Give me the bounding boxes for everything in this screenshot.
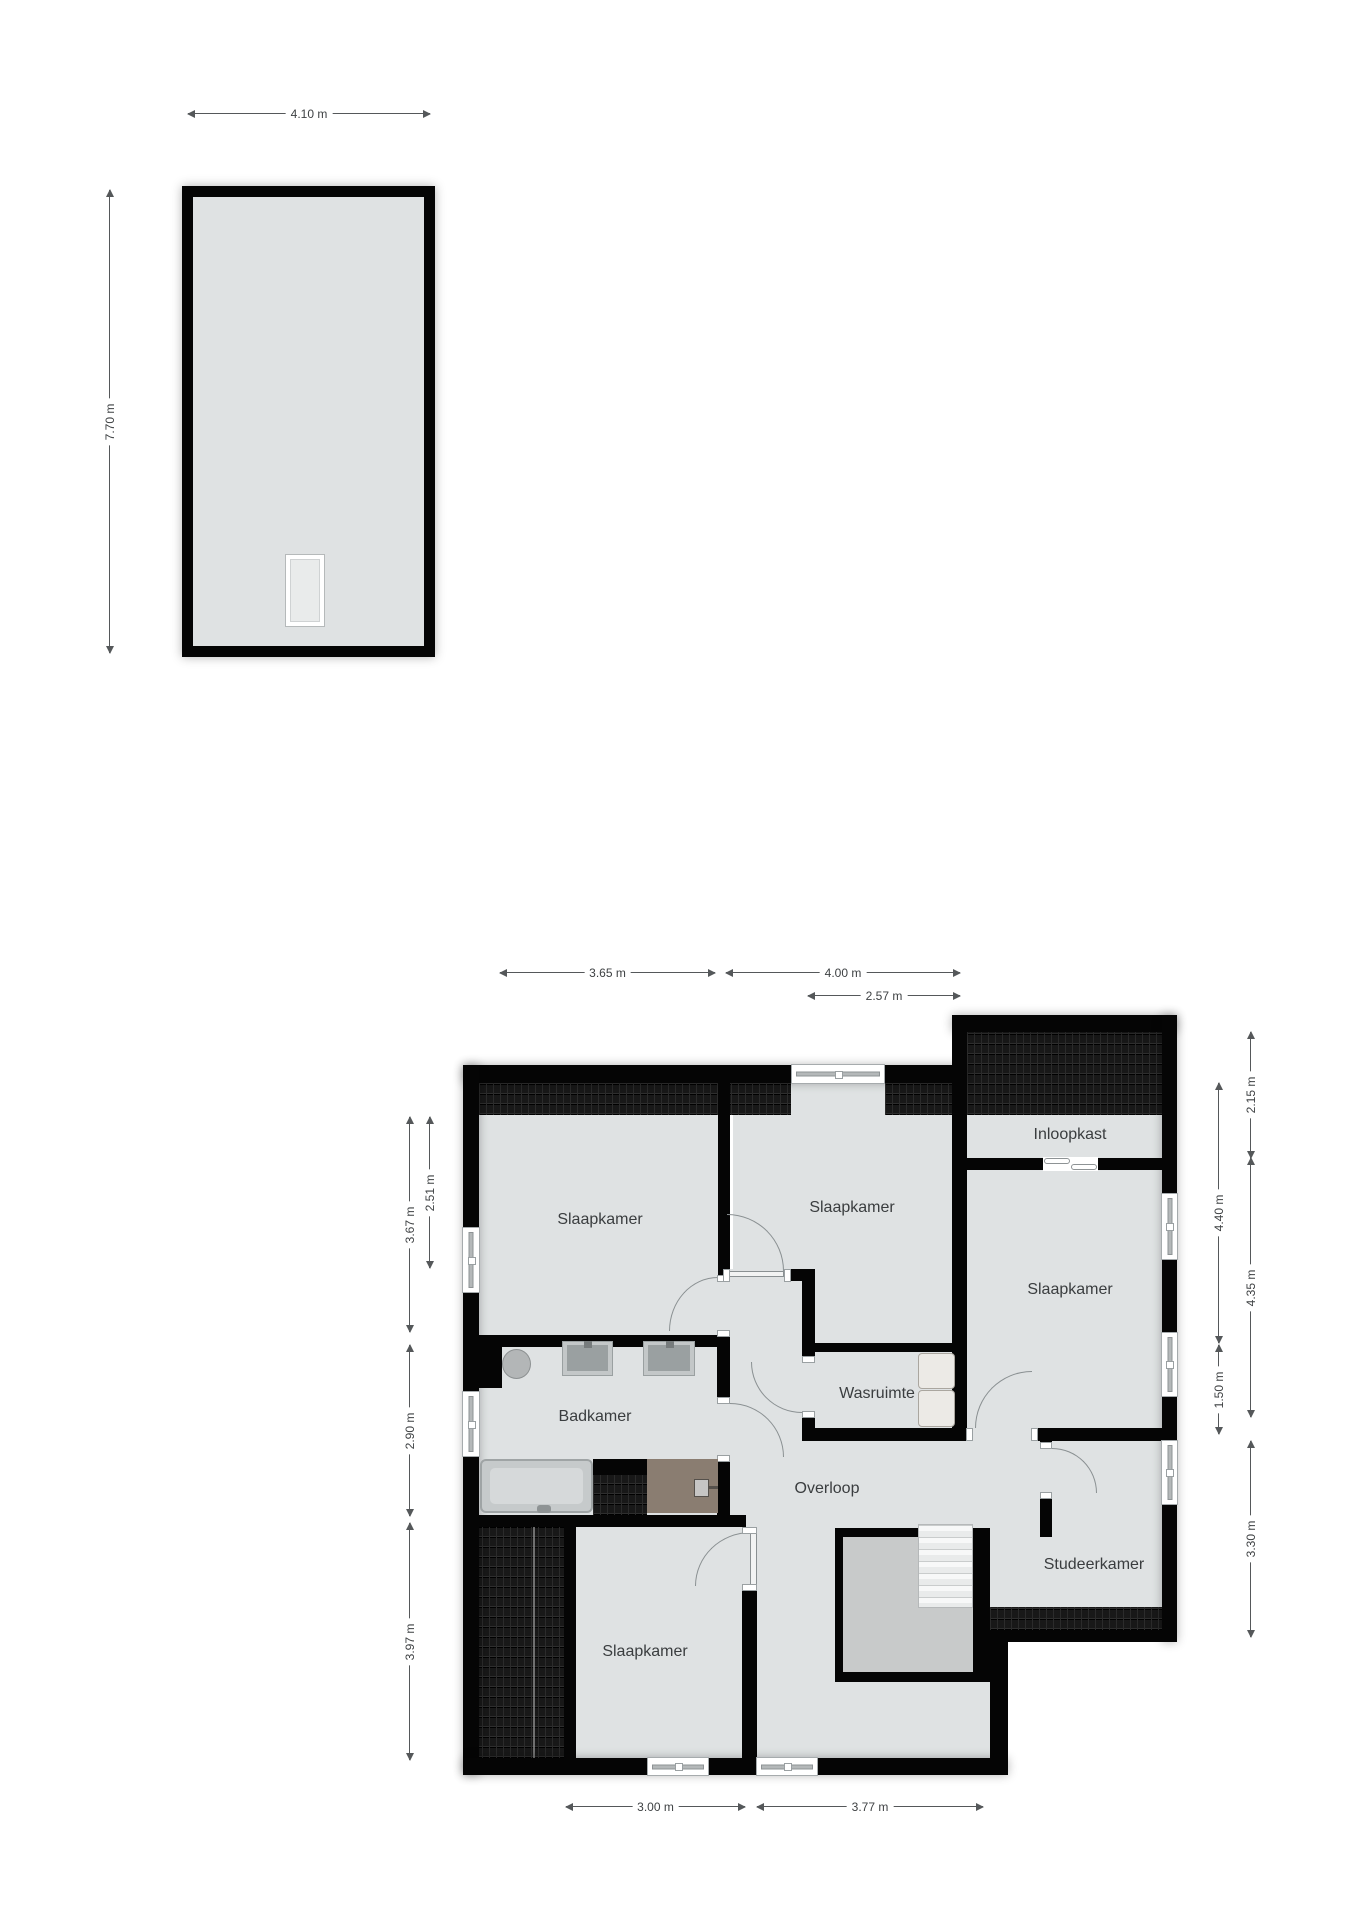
- window: [462, 1227, 480, 1293]
- wall: [990, 1632, 1008, 1758]
- dimension: 3.67 m: [409, 1117, 410, 1332]
- dryer: [918, 1390, 955, 1427]
- dimension-label: 7.70 m: [102, 398, 118, 445]
- staircase: [918, 1524, 973, 1608]
- room-label-laundry: Wasruimte: [839, 1385, 915, 1403]
- skylight: [285, 554, 325, 627]
- door-opening: [802, 1362, 815, 1412]
- room-label-bedroom-e: Slaapkamer: [1027, 1281, 1112, 1299]
- wall: [802, 1343, 967, 1352]
- wall: [835, 1672, 990, 1682]
- sink: [562, 1341, 613, 1376]
- door-jamb: [966, 1428, 973, 1441]
- door-jamb: [784, 1269, 791, 1282]
- door-opening: [718, 1281, 730, 1331]
- wall: [564, 1527, 576, 1758]
- dimension: 3.65 m: [500, 972, 715, 973]
- door-jamb: [742, 1584, 757, 1591]
- sloped-roof-area: [967, 1030, 1162, 1115]
- wall: [802, 1269, 815, 1352]
- sloped-roof-area: [990, 1607, 1162, 1630]
- room-label-walk-in-closet: Inloopkast: [1034, 1126, 1107, 1144]
- window: [462, 1391, 480, 1457]
- floorplan-canvas: 4.10 m 7.70 m: [0, 0, 1358, 1920]
- window: [647, 1757, 709, 1776]
- sink: [643, 1341, 695, 1376]
- door-leaf: [728, 1271, 784, 1277]
- window: [756, 1757, 818, 1776]
- room-landing: [835, 1682, 990, 1758]
- dimension: 3.30 m: [1250, 1441, 1251, 1637]
- boiler-unit: [694, 1479, 709, 1497]
- dimension: 2.51 m: [429, 1117, 430, 1268]
- dimension: 3.97 m: [409, 1523, 410, 1760]
- dimension-label: 4.10 m: [286, 106, 333, 122]
- wall: [835, 1528, 843, 1682]
- dimension: 4.40 m: [1218, 1083, 1219, 1343]
- room-landing: [730, 1276, 802, 1347]
- bathtub-faucet: [537, 1505, 551, 1513]
- dimension: 2.90 m: [409, 1345, 410, 1516]
- door-jamb: [717, 1397, 730, 1404]
- built-in-cabinet: [647, 1459, 718, 1513]
- boiler-pipe: [709, 1486, 718, 1489]
- room-landing: [990, 1441, 1040, 1537]
- washing-machine: [918, 1353, 955, 1389]
- wall: [835, 1528, 918, 1537]
- wall: [463, 1758, 1008, 1775]
- room-label-bathroom: Badkamer: [559, 1408, 632, 1426]
- door-jamb: [1040, 1492, 1052, 1499]
- roof-ridge-line: [533, 1527, 535, 1758]
- wall: [593, 1459, 647, 1475]
- door-jamb: [723, 1269, 730, 1282]
- sloped-roof-area: [885, 1082, 955, 1115]
- door-opening: [717, 1403, 730, 1456]
- wall: [952, 1015, 1177, 1032]
- window: [1161, 1193, 1178, 1260]
- sloped-roof-area: [479, 1082, 791, 1115]
- door-jamb: [717, 1330, 730, 1337]
- room-label-landing: Overloop: [795, 1480, 860, 1498]
- window: [1161, 1440, 1178, 1505]
- dimension: 1.50 m: [1218, 1345, 1219, 1434]
- room-label-bedroom-s: Slaapkamer: [602, 1643, 687, 1661]
- wall: [973, 1630, 1177, 1642]
- sink-basin: [648, 1345, 690, 1371]
- wall: [973, 1528, 990, 1682]
- room-label-bedroom-nw: Slaapkamer: [557, 1211, 642, 1229]
- sink-tap: [666, 1341, 674, 1348]
- door-jamb: [1040, 1442, 1052, 1449]
- dimension: 4.00 m: [726, 972, 960, 973]
- wall: [463, 1065, 967, 1083]
- skylight-glass: [290, 559, 320, 622]
- sliding-door-panel: [1071, 1164, 1097, 1170]
- wall: [1162, 1015, 1177, 1642]
- door-jamb: [802, 1411, 815, 1418]
- bathtub-inner: [490, 1468, 583, 1504]
- room-label-study: Studeerkamer: [1044, 1556, 1145, 1574]
- door-jamb: [802, 1356, 815, 1363]
- door-jamb: [742, 1527, 757, 1534]
- door-opening: [972, 1428, 1032, 1441]
- wall: [463, 1515, 746, 1527]
- door-leaf: [750, 1528, 757, 1586]
- sloped-roof-area: [593, 1475, 647, 1515]
- bathtub: [480, 1459, 593, 1513]
- door-opening: [1040, 1448, 1052, 1493]
- dimension: 3.00 m: [566, 1806, 745, 1807]
- room-landing: [757, 1528, 835, 1758]
- toilet-bowl: [502, 1349, 531, 1379]
- sliding-door: [1043, 1157, 1098, 1171]
- sliding-door-panel: [1044, 1158, 1070, 1164]
- sink-basin: [567, 1345, 608, 1371]
- dimension-attic-depth: 7.70 m: [109, 190, 110, 653]
- sink-tap: [584, 1341, 592, 1348]
- dimension: 3.77 m: [757, 1806, 983, 1807]
- dimension: 2.15 m: [1250, 1032, 1251, 1158]
- door-jamb: [1031, 1428, 1038, 1441]
- dimension: 2.57 m: [808, 995, 960, 996]
- dimension: 4.35 m: [1250, 1158, 1251, 1417]
- sloped-roof-area: [475, 1527, 564, 1758]
- window: [791, 1064, 885, 1084]
- toilet-cistern: [479, 1342, 502, 1388]
- dimension-attic-width: 4.10 m: [188, 113, 430, 114]
- door-jamb: [717, 1455, 730, 1462]
- window: [1161, 1332, 1178, 1397]
- room-label-bedroom-n: Slaapkamer: [809, 1199, 894, 1217]
